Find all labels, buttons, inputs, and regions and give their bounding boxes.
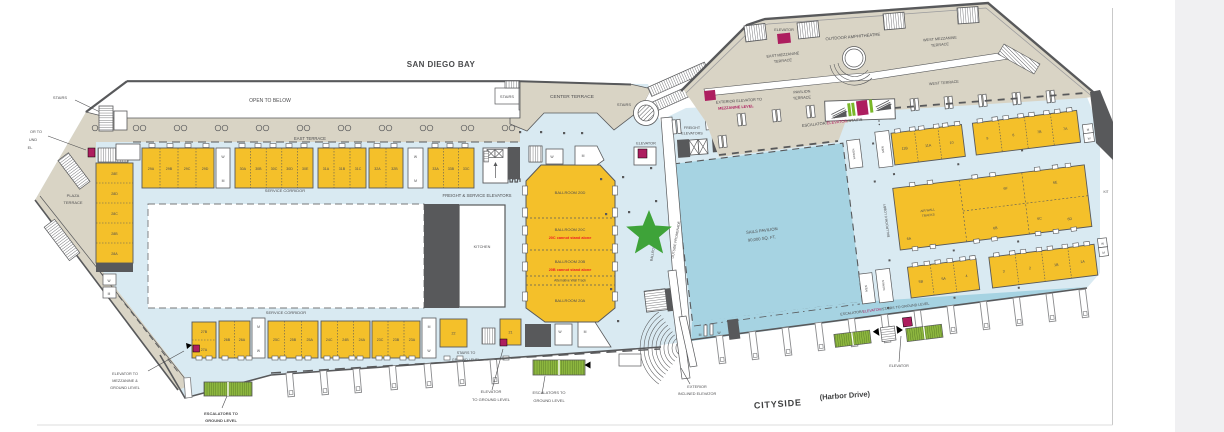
- svg-text:UND: UND: [29, 138, 37, 142]
- svg-text:M: M: [584, 330, 587, 334]
- svg-text:11A: 11A: [925, 143, 932, 148]
- svg-text:TO GROUND LEVEL: TO GROUND LEVEL: [472, 397, 511, 402]
- svg-text:OPEN TO BELOW: OPEN TO BELOW: [249, 98, 291, 104]
- svg-text:Alternative Wall Track: Alternative Wall Track: [554, 279, 586, 283]
- svg-text:30A: 30A: [240, 167, 247, 171]
- svg-text:24A: 24A: [359, 338, 366, 342]
- svg-text:ESCALATORS TO: ESCALATORS TO: [204, 411, 238, 416]
- svg-text:24C: 24C: [326, 338, 333, 342]
- svg-text:10: 10: [949, 141, 953, 145]
- svg-text:32B: 32B: [391, 167, 398, 171]
- svg-text:M: M: [257, 325, 260, 329]
- svg-text:GROUND LEVEL: GROUND LEVEL: [205, 418, 237, 423]
- svg-text:TERRACE: TERRACE: [63, 200, 82, 205]
- svg-text:31A: 31A: [323, 167, 330, 171]
- svg-text:32A: 32A: [374, 167, 381, 171]
- svg-text:31B: 31B: [339, 167, 346, 171]
- svg-text:GROUND LEVEL: GROUND LEVEL: [533, 398, 565, 403]
- svg-text:22: 22: [452, 332, 456, 336]
- svg-text:33C: 33C: [463, 167, 470, 171]
- svg-text:29D: 29D: [202, 167, 209, 171]
- svg-text:ELEVATOR: ELEVATOR: [481, 389, 502, 394]
- svg-text:31C: 31C: [355, 167, 362, 171]
- svg-text:GROUND LEVEL: GROUND LEVEL: [110, 386, 140, 390]
- svg-text:FREIGHT: FREIGHT: [684, 126, 701, 130]
- svg-text:M: M: [428, 325, 431, 329]
- svg-text:ESCALATORS TO: ESCALATORS TO: [532, 390, 565, 395]
- svg-text:STAIRS: STAIRS: [53, 95, 67, 100]
- svg-text:BALLROOM 20B: BALLROOM 20B: [555, 259, 586, 264]
- svg-text:28A: 28A: [111, 252, 118, 256]
- svg-text:21: 21: [509, 331, 513, 335]
- svg-text:ELEVATOR TO: ELEVATOR TO: [112, 372, 138, 376]
- svg-text:23B: 23B: [393, 338, 400, 342]
- svg-text:20B cannot stand alone: 20B cannot stand alone: [549, 268, 592, 272]
- svg-text:29C: 29C: [184, 167, 191, 171]
- svg-text:MEZZANINE &: MEZZANINE &: [112, 379, 138, 383]
- svg-text:STAIRS: STAIRS: [500, 94, 514, 99]
- svg-text:MEN: MEN: [864, 285, 869, 292]
- svg-text:30C: 30C: [271, 167, 278, 171]
- svg-text:BALLROOM 20A: BALLROOM 20A: [555, 298, 586, 303]
- svg-text:6D: 6D: [1067, 217, 1072, 222]
- svg-text:SAN DIEGO BAY: SAN DIEGO BAY: [407, 60, 476, 69]
- svg-text:PLAZA: PLAZA: [67, 193, 80, 198]
- svg-text:33B: 33B: [448, 167, 455, 171]
- svg-text:FREIGHT & SERVICE ELEVATORS: FREIGHT & SERVICE ELEVATORS: [442, 193, 511, 198]
- svg-text:KIT: KIT: [1104, 190, 1109, 194]
- svg-text:6C: 6C: [1037, 216, 1042, 221]
- svg-text:KITCHEN: KITCHEN: [474, 245, 491, 249]
- svg-text:BALLROOM 20D: BALLROOM 20D: [555, 190, 586, 195]
- svg-text:M: M: [582, 154, 585, 158]
- svg-text:25C: 25C: [273, 338, 280, 342]
- svg-text:STAIRS TO: STAIRS TO: [457, 351, 476, 355]
- svg-text:26A: 26A: [239, 338, 246, 342]
- svg-text:25A: 25A: [306, 338, 313, 342]
- svg-text:33A: 33A: [432, 167, 439, 171]
- svg-text:W: W: [107, 279, 110, 283]
- svg-text:30E: 30E: [302, 167, 309, 171]
- svg-text:27A: 27A: [201, 348, 208, 352]
- svg-text:ELEVATOR: ELEVATOR: [636, 142, 656, 146]
- svg-text:28E: 28E: [111, 172, 118, 176]
- svg-text:23C: 23C: [377, 338, 384, 342]
- svg-text:M: M: [108, 292, 111, 296]
- svg-text:EXTERIOR: EXTERIOR: [687, 385, 707, 389]
- svg-text:28D: 28D: [111, 192, 118, 196]
- svg-text:ELEVATOR: ELEVATOR: [774, 28, 794, 32]
- svg-text:30D: 30D: [286, 167, 293, 171]
- svg-text:EL: EL: [28, 146, 33, 150]
- svg-text:INCLINED ELEVATOR: INCLINED ELEVATOR: [678, 392, 717, 396]
- svg-text:ELEVATORS: ELEVATORS: [681, 132, 703, 136]
- svg-text:OR TO: OR TO: [30, 130, 42, 134]
- svg-text:11B: 11B: [901, 146, 908, 151]
- svg-text:M: M: [699, 333, 702, 337]
- svg-text:29B: 29B: [166, 167, 173, 171]
- svg-text:26B: 26B: [224, 338, 231, 342]
- svg-text:BALLROOM 20C: BALLROOM 20C: [555, 227, 586, 232]
- svg-text:23A: 23A: [409, 338, 416, 342]
- svg-text:27B: 27B: [201, 330, 208, 334]
- svg-text:STAIRS: STAIRS: [617, 102, 631, 107]
- svg-text:SERVICE CORRIDOR: SERVICE CORRIDOR: [266, 310, 306, 315]
- svg-text:29A: 29A: [148, 167, 155, 171]
- svg-text:ELEVATOR: ELEVATOR: [889, 364, 909, 368]
- svg-text:24B: 24B: [342, 338, 349, 342]
- svg-text:28C: 28C: [111, 212, 118, 216]
- svg-text:25B: 25B: [290, 338, 297, 342]
- svg-text:MEN: MEN: [881, 146, 886, 153]
- svg-text:20C cannot stand alone: 20C cannot stand alone: [549, 236, 592, 240]
- svg-text:M: M: [414, 179, 417, 183]
- svg-text:CENTER TERRACE: CENTER TERRACE: [550, 94, 594, 100]
- svg-text:30B: 30B: [255, 167, 262, 171]
- svg-text:28B: 28B: [111, 232, 118, 236]
- svg-text:M: M: [222, 179, 225, 183]
- svg-text:SERVICE CORRIDOR: SERVICE CORRIDOR: [265, 188, 305, 193]
- svg-text:EAST TERRACE: EAST TERRACE: [294, 136, 326, 141]
